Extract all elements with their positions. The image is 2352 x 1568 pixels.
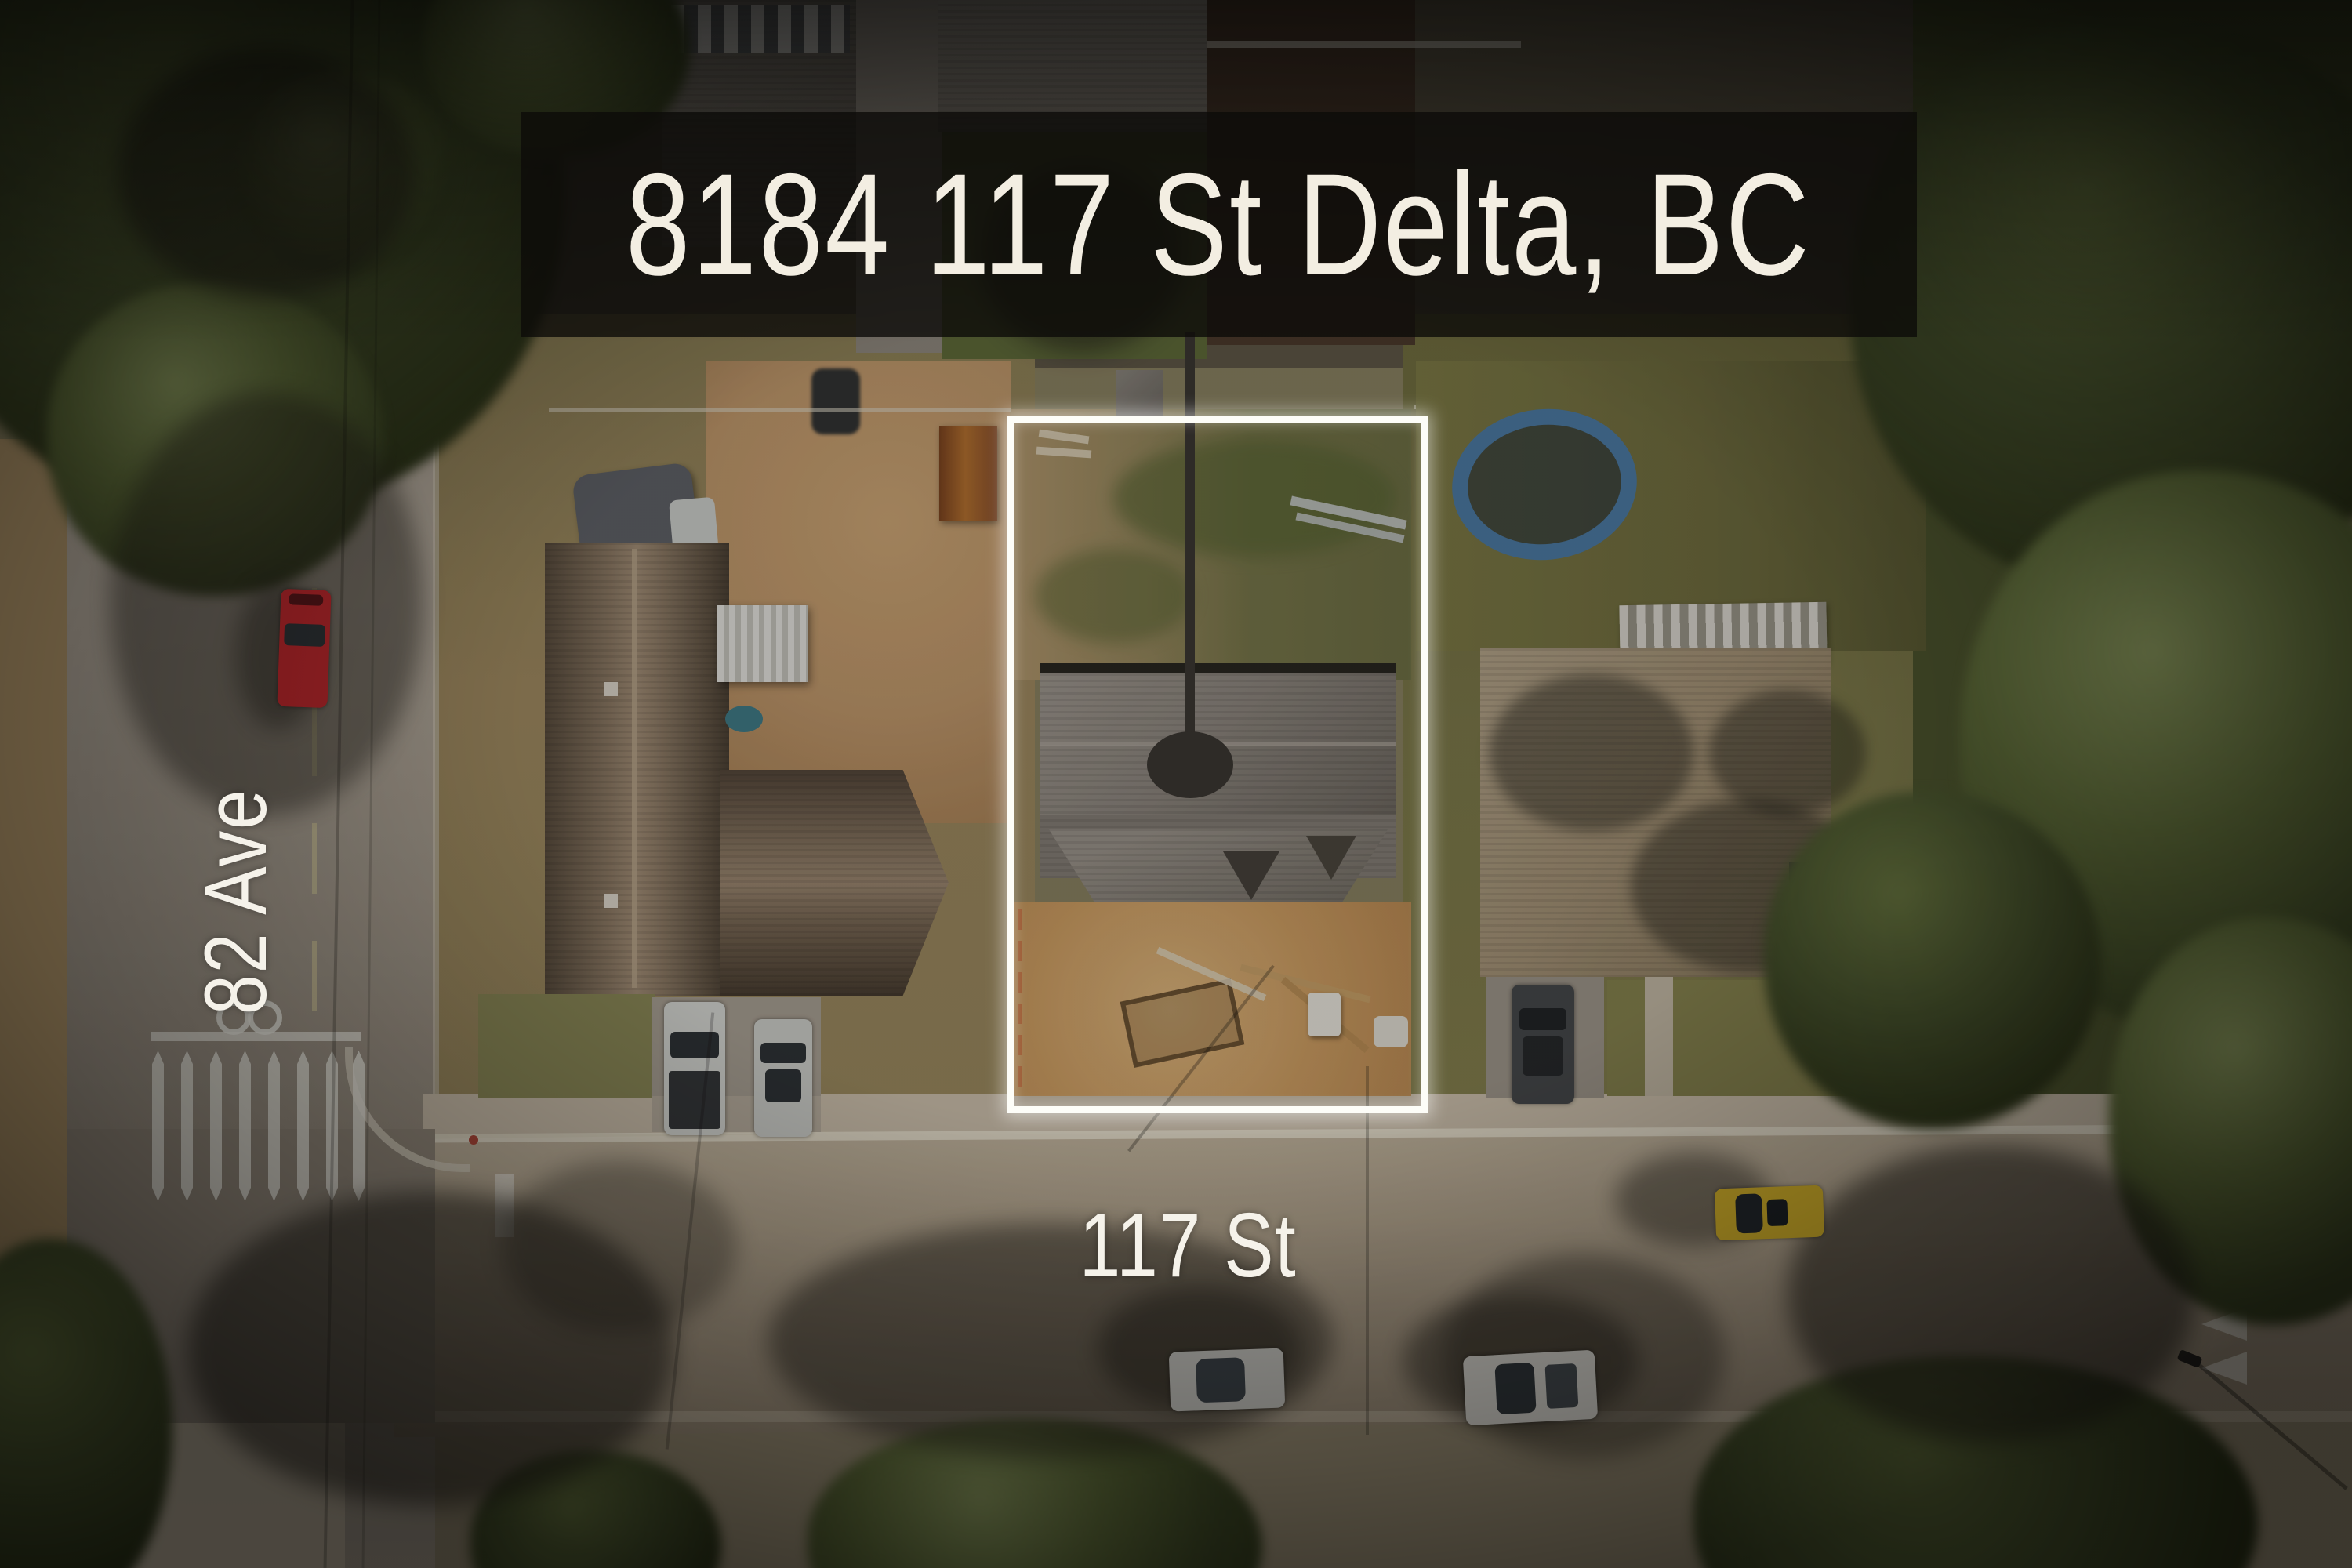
address-banner: 8184 117 St Delta, BC (521, 112, 1917, 337)
street-label-117-st-text: 117 St (1079, 1192, 1297, 1298)
property-boundary-outline (1007, 416, 1428, 1113)
street-label-82-ave-text: 82 Ave (185, 788, 286, 1014)
street-label-117-st: 117 St (1011, 1190, 1364, 1300)
street-label-82-ave: 82 Ave (153, 737, 318, 1066)
address-banner-text: 8184 117 St Delta, BC (626, 142, 1811, 308)
aerial-photo: 8184 117 St Delta, BC 82 Ave 117 St (0, 0, 2352, 1568)
